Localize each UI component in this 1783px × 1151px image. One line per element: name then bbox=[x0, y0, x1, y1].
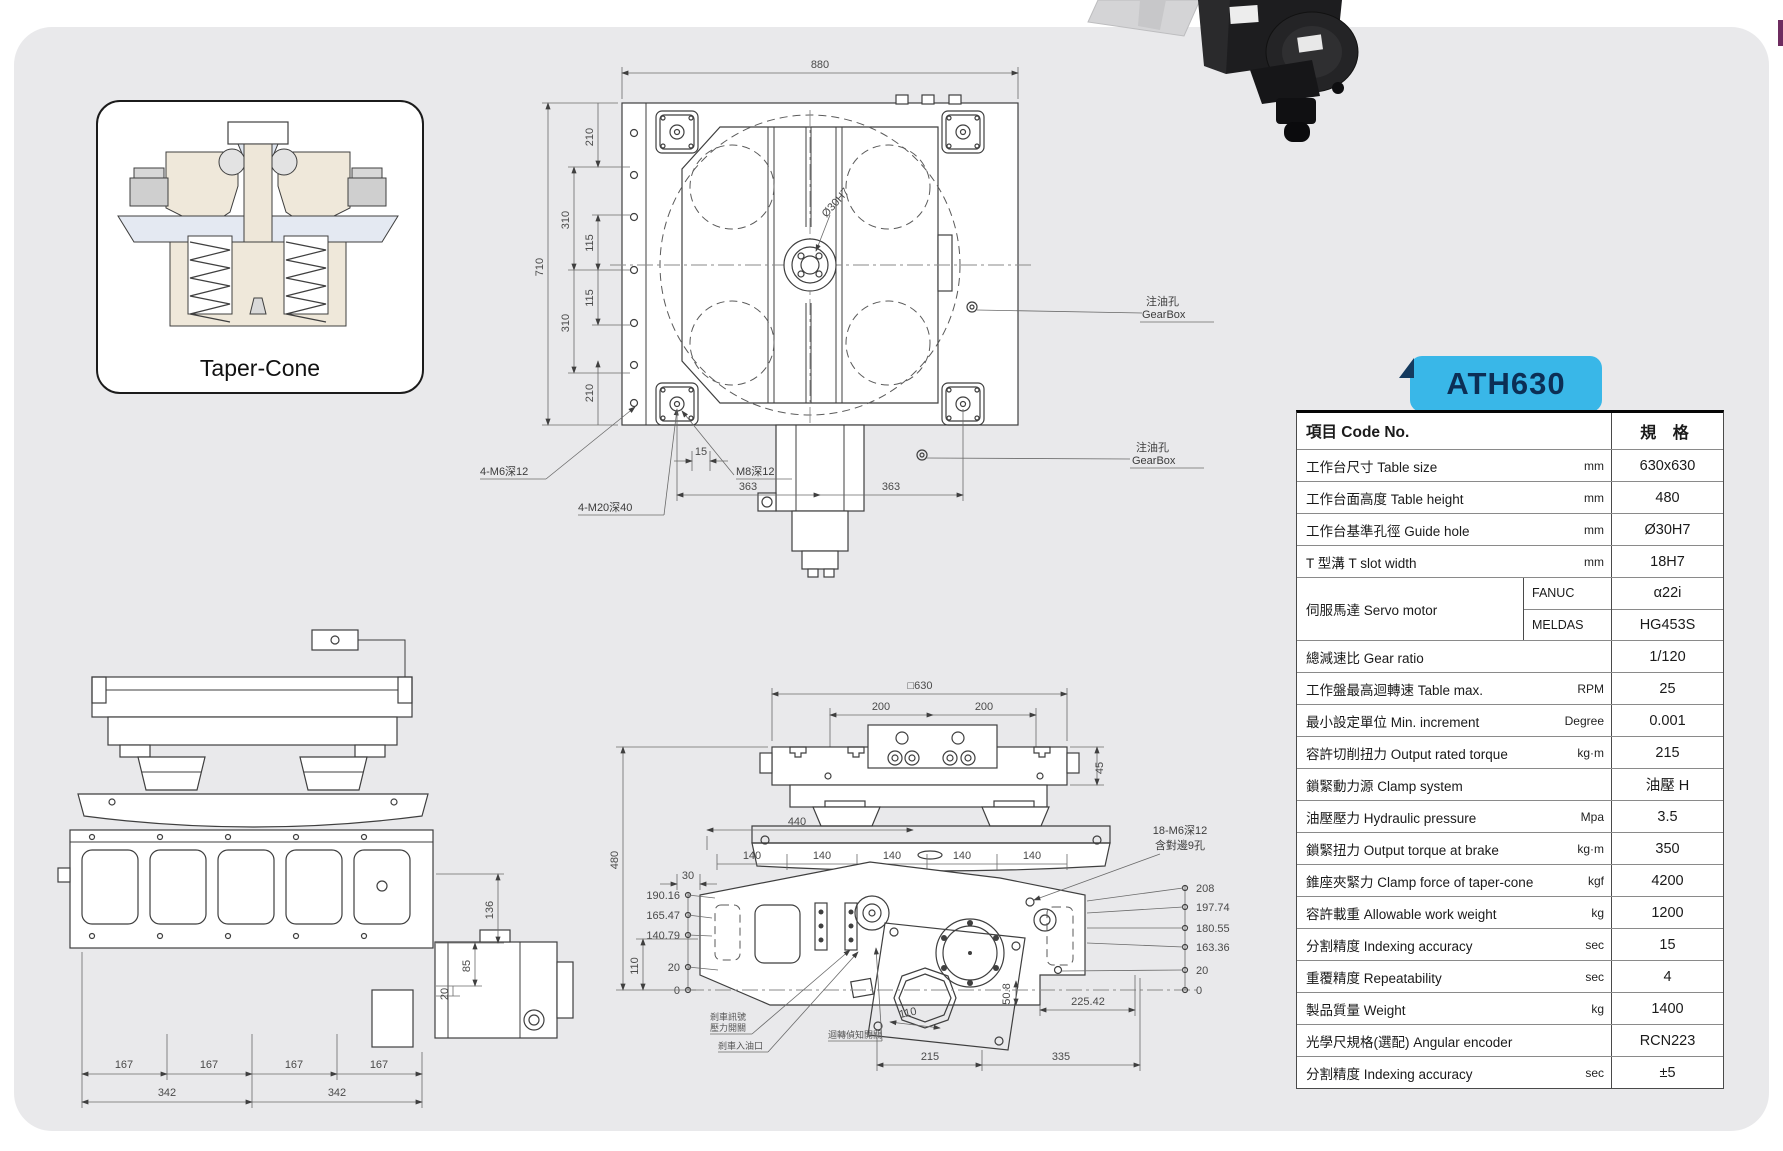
row-label: 鎖緊扭力 Output torque at brake bbox=[1297, 833, 1548, 864]
dim-140-4: 140 bbox=[953, 850, 971, 862]
row-label: 伺服馬達 Servo motor bbox=[1297, 578, 1523, 640]
label-18-m6: 18-M6深12 bbox=[1153, 824, 1207, 837]
dim-215: 215 bbox=[921, 1051, 939, 1063]
row-unit: mm bbox=[1548, 482, 1611, 513]
row-value: 630x630 bbox=[1611, 450, 1723, 481]
row-unit: mm bbox=[1548, 450, 1611, 481]
row-label: 工作台尺寸 Table size bbox=[1297, 450, 1548, 481]
table-row: 油壓壓力 Hydraulic pressure Mpa 3.5 bbox=[1297, 800, 1723, 832]
dim-210-bottom: 210 bbox=[584, 384, 596, 402]
row-value: 4 bbox=[1611, 961, 1723, 992]
dim-208: 208 bbox=[1196, 883, 1214, 895]
dim-335: 335 bbox=[1052, 1051, 1070, 1063]
front-view-drawing: □630 200 200 45 440 140 140 140 140 14 bbox=[600, 598, 1250, 1150]
label-pressure-switch: 壓力開關 bbox=[710, 1022, 746, 1033]
label-brake-oil-inlet: 剎車入油口 bbox=[718, 1040, 763, 1051]
dim-180-55: 180.55 bbox=[1196, 923, 1230, 935]
dim-363-right: 363 bbox=[882, 481, 900, 493]
row-label: 光學尺規格(選配) Angular encoder bbox=[1297, 1025, 1548, 1056]
dim-310-top: 310 bbox=[560, 211, 572, 229]
row-unit: Mpa bbox=[1548, 801, 1611, 832]
dim-15: 15 bbox=[695, 446, 707, 458]
row-label: 最小設定單位 Min. increment bbox=[1297, 705, 1548, 736]
dim-45: 45 bbox=[1094, 762, 1106, 774]
dim-342-2: 342 bbox=[328, 1087, 346, 1099]
row-label: 分割精度 Indexing accuracy bbox=[1297, 1057, 1548, 1088]
dim-200-left: 200 bbox=[872, 701, 890, 713]
row-label: 工作台基準孔徑 Guide hole bbox=[1297, 514, 1548, 545]
table-row: 重覆精度 Repeatability sec 4 bbox=[1297, 960, 1723, 992]
dim-210-top: 210 bbox=[584, 128, 596, 146]
top-view-drawing: Ø30H7 880 710 310 310 210 115 115 210 4-… bbox=[470, 55, 1260, 607]
row-unit: sec bbox=[1548, 1057, 1611, 1088]
row-label: 容許載重 Allowable work weight bbox=[1297, 897, 1548, 928]
row-value: 4200 bbox=[1611, 865, 1723, 896]
table-row: 錐座夾緊力 Clamp force of taper-cone kgf 4200 bbox=[1297, 864, 1723, 896]
dim-167-4: 167 bbox=[370, 1059, 388, 1071]
servo-value: HG453S bbox=[1612, 609, 1723, 641]
label-m8: M8深12 bbox=[736, 465, 775, 478]
dim-310-bottom: 310 bbox=[560, 314, 572, 332]
header-spec: 規 格 bbox=[1611, 413, 1723, 449]
table-row: 容許切削扭力 Output rated torque kg·m 215 bbox=[1297, 736, 1723, 768]
dim-225-42: 225.42 bbox=[1071, 996, 1105, 1008]
row-label: 重覆精度 Repeatability bbox=[1297, 961, 1548, 992]
dim-880: 880 bbox=[811, 59, 829, 71]
row-label: 工作盤最高迴轉速 Table max. bbox=[1297, 673, 1548, 704]
row-unit bbox=[1548, 769, 1611, 800]
label-4-m20: 4-M20深40 bbox=[578, 501, 632, 514]
dim-20-right: 20 bbox=[1196, 965, 1208, 977]
row-unit bbox=[1548, 1025, 1611, 1056]
dim-20: 20 bbox=[439, 988, 451, 1000]
dim-140-2: 140 bbox=[813, 850, 831, 862]
dim-710: 710 bbox=[534, 258, 546, 276]
dim-30: 30 bbox=[682, 870, 694, 882]
model-tab-fold-icon bbox=[1399, 358, 1414, 378]
row-value: 25 bbox=[1611, 673, 1723, 704]
label-rotation-sensor: 迴轉偵知開關 bbox=[828, 1029, 882, 1040]
row-label: 容許切削扭力 Output rated torque bbox=[1297, 737, 1548, 768]
row-unit: kg bbox=[1548, 993, 1611, 1024]
row-label: 分割精度 Indexing accuracy bbox=[1297, 929, 1548, 960]
table-row: 工作盤最高迴轉速 Table max. RPM 25 bbox=[1297, 672, 1723, 704]
servo-brand: FANUC bbox=[1524, 578, 1611, 609]
row-value: 1/120 bbox=[1611, 641, 1723, 672]
row-unit: sec bbox=[1548, 961, 1611, 992]
model-name: ATH630 bbox=[1446, 366, 1565, 402]
row-unit: mm bbox=[1548, 514, 1611, 545]
label-oil-hole-2: 注油孔 bbox=[1136, 440, 1169, 454]
row-value: 15 bbox=[1611, 929, 1723, 960]
servo-brand: MELDAS bbox=[1524, 609, 1611, 641]
row-label: 工作台面高度 Table height bbox=[1297, 482, 1548, 513]
row-label: 鎖緊動力源 Clamp system bbox=[1297, 769, 1548, 800]
row-unit: RPM bbox=[1548, 673, 1611, 704]
dim-363-left: 363 bbox=[739, 481, 757, 493]
table-row: T 型溝 T slot width mm 18H7 bbox=[1297, 545, 1723, 577]
dim-140-79: 140.79 bbox=[646, 930, 680, 942]
page-edge-accent bbox=[1778, 20, 1783, 46]
table-row: 鎖緊動力源 Clamp system 油壓 H bbox=[1297, 768, 1723, 800]
row-value: RCN223 bbox=[1611, 1025, 1723, 1056]
label-gearbox-2: GearBox bbox=[1132, 455, 1176, 467]
row-value: 0.001 bbox=[1611, 705, 1723, 736]
row-value: 350 bbox=[1611, 833, 1723, 864]
row-value: 18H7 bbox=[1611, 546, 1723, 577]
label-gearbox-1: GearBox bbox=[1142, 309, 1186, 321]
dim-190-16: 190.16 bbox=[646, 890, 680, 902]
row-unit: kg·m bbox=[1548, 737, 1611, 768]
row-value: 1200 bbox=[1611, 897, 1723, 928]
label-brake-signal: 剎車訊號 bbox=[710, 1011, 746, 1022]
dim-140-1: 140 bbox=[743, 850, 761, 862]
servo-motor-row: 伺服馬達 Servo motor FANUC MELDAS α22i HG453… bbox=[1297, 577, 1723, 640]
dim-0-right: 0 bbox=[1196, 985, 1202, 997]
row-label: 製品質量 Weight bbox=[1297, 993, 1548, 1024]
label-18-m6-note: 含對邊9孔 bbox=[1155, 838, 1205, 852]
table-header-row: 項目 Code No. 規 格 bbox=[1297, 413, 1723, 449]
table-row: 分割精度 Indexing accuracy sec ±5 bbox=[1297, 1056, 1723, 1088]
row-label: 錐座夾緊力 Clamp force of taper-cone bbox=[1297, 865, 1548, 896]
dim-342-1: 342 bbox=[158, 1087, 176, 1099]
row-unit: sec bbox=[1548, 929, 1611, 960]
servo-brand-column: FANUC MELDAS bbox=[1523, 578, 1611, 640]
table-row: 製品質量 Weight kg 1400 bbox=[1297, 992, 1723, 1024]
header-unit-spacer bbox=[1548, 413, 1611, 449]
label-oil-hole-1: 注油孔 bbox=[1146, 294, 1179, 308]
row-value: 1400 bbox=[1611, 993, 1723, 1024]
row-value: 油壓 H bbox=[1611, 769, 1723, 800]
row-value: 480 bbox=[1611, 482, 1723, 513]
dim-115-a: 115 bbox=[584, 234, 596, 252]
table-row: 工作台面高度 Table height mm 480 bbox=[1297, 481, 1723, 513]
spec-table: 項目 Code No. 規 格 工作台尺寸 Table size mm 630x… bbox=[1296, 410, 1724, 1089]
table-row: 容許載重 Allowable work weight kg 1200 bbox=[1297, 896, 1723, 928]
dim-630: □630 bbox=[908, 680, 933, 692]
dim-167-1: 167 bbox=[115, 1059, 133, 1071]
row-unit bbox=[1548, 641, 1611, 672]
row-value: ±5 bbox=[1611, 1057, 1723, 1088]
row-unit: mm bbox=[1548, 546, 1611, 577]
dim-165-47: 165.47 bbox=[646, 910, 680, 922]
dim-85: 85 bbox=[461, 960, 473, 972]
dim-115-b: 115 bbox=[584, 289, 596, 307]
table-row: 工作台基準孔徑 Guide hole mm Ø30H7 bbox=[1297, 513, 1723, 545]
dim-20-left: 20 bbox=[668, 962, 680, 974]
row-unit: kg bbox=[1548, 897, 1611, 928]
dim-480: 480 bbox=[609, 851, 621, 869]
table-row: 總減速比 Gear ratio 1/120 bbox=[1297, 640, 1723, 672]
row-label: 油壓壓力 Hydraulic pressure bbox=[1297, 801, 1548, 832]
taper-cone-panel: Taper-Cone bbox=[96, 100, 424, 394]
model-tab: ATH630 bbox=[1410, 356, 1602, 412]
row-value: 215 bbox=[1611, 737, 1723, 768]
row-label: 總減速比 Gear ratio bbox=[1297, 641, 1548, 672]
dim-200-right: 200 bbox=[975, 701, 993, 713]
dim-163-36: 163.36 bbox=[1196, 942, 1230, 954]
dim-167-2: 167 bbox=[200, 1059, 218, 1071]
row-unit: kg·m bbox=[1548, 833, 1611, 864]
label-4-m6: 4-M6深12 bbox=[480, 465, 528, 478]
dim-110-left: 110 bbox=[629, 957, 641, 975]
row-value: 3.5 bbox=[1611, 801, 1723, 832]
header-item: 項目 Code No. bbox=[1297, 413, 1548, 449]
table-row: 最小設定單位 Min. increment Degree 0.001 bbox=[1297, 704, 1723, 736]
dim-50-8: 50.8 bbox=[1001, 983, 1013, 1004]
dim-136: 136 bbox=[484, 901, 496, 919]
row-value: Ø30H7 bbox=[1611, 514, 1723, 545]
table-row: 工作台尺寸 Table size mm 630x630 bbox=[1297, 449, 1723, 481]
servo-value: α22i bbox=[1612, 578, 1723, 609]
side-view-drawing: 136 85 20 167 167 167 167 342 342 bbox=[50, 622, 610, 1127]
dim-440: 440 bbox=[788, 816, 806, 828]
table-row: 鎖緊扭力 Output torque at brake kg·m 350 bbox=[1297, 832, 1723, 864]
table-row: 光學尺規格(選配) Angular encoder RCN223 bbox=[1297, 1024, 1723, 1056]
row-unit: Degree bbox=[1548, 705, 1611, 736]
taper-cone-drawing bbox=[110, 116, 406, 340]
dim-197-74: 197.74 bbox=[1196, 902, 1230, 914]
row-label: T 型溝 T slot width bbox=[1297, 546, 1548, 577]
taper-cone-caption: Taper-Cone bbox=[98, 355, 422, 382]
table-row: 分割精度 Indexing accuracy sec 15 bbox=[1297, 928, 1723, 960]
dim-140-5: 140 bbox=[1023, 850, 1041, 862]
dim-140-3: 140 bbox=[883, 850, 901, 862]
row-unit: kgf bbox=[1548, 865, 1611, 896]
servo-value-column: α22i HG453S bbox=[1611, 578, 1723, 640]
dim-0-left: 0 bbox=[674, 985, 680, 997]
dim-167-3: 167 bbox=[285, 1059, 303, 1071]
